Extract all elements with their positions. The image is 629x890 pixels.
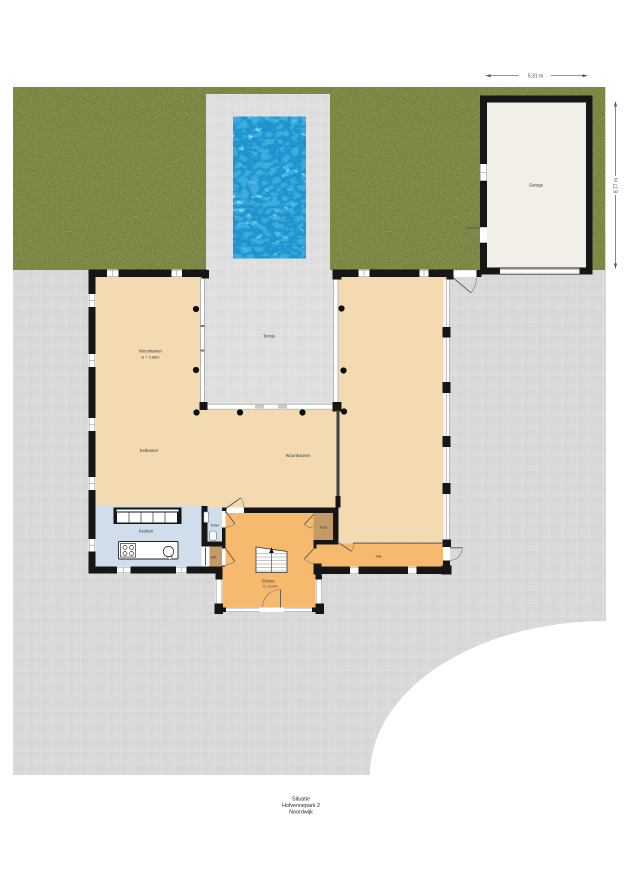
svg-text:Woonkeuken: Woonkeuken: [285, 453, 311, 458]
svg-text:WK: WK: [210, 555, 217, 560]
svg-text:Toilet: Toilet: [210, 523, 220, 528]
svg-text:Hofvennepark 2: Hofvennepark 2: [282, 803, 320, 809]
svg-text:Entree: Entree: [262, 579, 275, 584]
svg-text:5.31 m: 5.31 m: [528, 74, 543, 80]
svg-text:8.77 m: 8.77 m: [613, 178, 619, 193]
svg-text:Kast: Kast: [320, 525, 329, 530]
svg-text:Noordwijk: Noordwijk: [289, 810, 313, 816]
svg-text:Woonkamer: Woonkamer: [139, 349, 163, 354]
svg-text:Hal: Hal: [376, 554, 382, 559]
svg-text:Garage: Garage: [529, 183, 544, 188]
svg-text:Eetkamer: Eetkamer: [140, 448, 159, 453]
svg-text:Situatie: Situatie: [292, 797, 310, 803]
svg-text:Keuken: Keuken: [139, 529, 154, 534]
svg-text:Terras: Terras: [263, 334, 275, 339]
svg-text:O: 13.0m²: O: 13.0m²: [263, 585, 279, 589]
svg-text:H = 2.68m: H = 2.68m: [141, 355, 159, 360]
